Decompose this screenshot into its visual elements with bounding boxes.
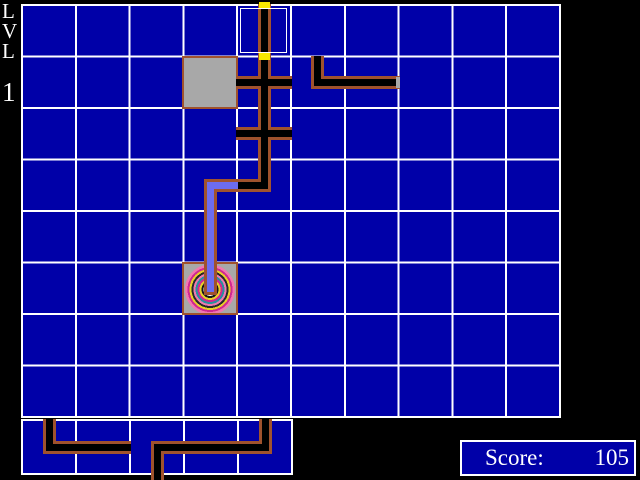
target-spiral-core bbox=[207, 262, 214, 292]
cursor-highlight bbox=[240, 8, 287, 53]
straight-pipe-filled-core bbox=[207, 233, 214, 263]
blocked-cell bbox=[182, 56, 238, 110]
level-label-char: L bbox=[2, 41, 22, 61]
queue-elbow-up-right-core bbox=[46, 444, 78, 451]
pipe-cap-yellow bbox=[259, 53, 270, 60]
pipe-board[interactable] bbox=[21, 4, 561, 418]
level-label-char: L bbox=[2, 1, 22, 21]
level-indicator: L V L 1 bbox=[2, 1, 22, 105]
queue-elbow-left-up-core bbox=[262, 419, 269, 451]
level-label-char: V bbox=[2, 21, 22, 41]
pipe-end-cap bbox=[396, 77, 400, 88]
score-value: 105 bbox=[595, 445, 630, 471]
elbow-pipe-core bbox=[314, 79, 345, 86]
level-number: 1 bbox=[2, 79, 22, 105]
score-label: Score: bbox=[485, 445, 544, 471]
queue-straight-core bbox=[100, 444, 132, 451]
pipe-queue bbox=[21, 419, 293, 475]
elbow-pipe-filled-core bbox=[207, 182, 214, 212]
score-box: Score: 105 bbox=[460, 440, 636, 476]
cross-pipe-core bbox=[261, 130, 292, 137]
queue-elbow-right-down-core bbox=[154, 444, 161, 480]
cross-pipe-core bbox=[261, 79, 292, 86]
game-screen: L V L 1 Score: 105 bbox=[0, 0, 640, 480]
elbow-pipe-core bbox=[236, 182, 267, 189]
queue-straight-core bbox=[208, 444, 240, 451]
